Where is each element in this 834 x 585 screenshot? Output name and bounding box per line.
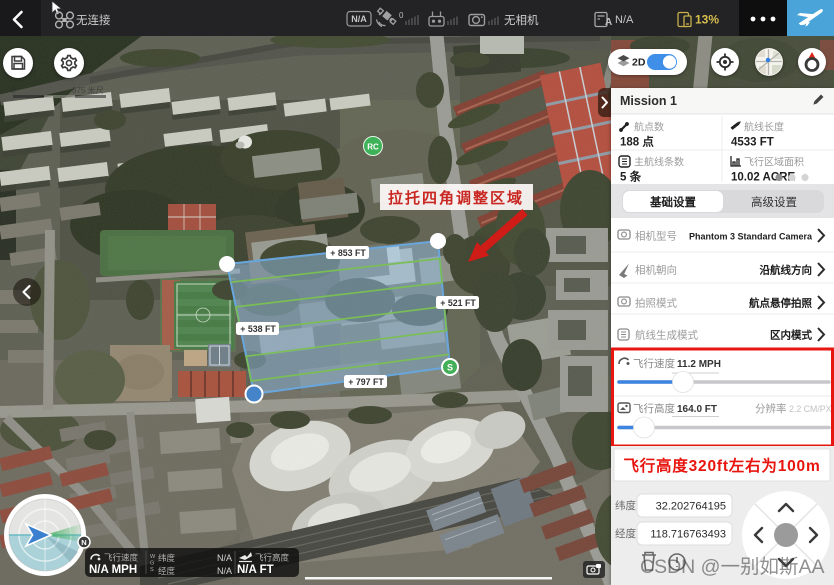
- svg-text:Mission 1: Mission 1: [620, 94, 677, 108]
- svg-text:飞行区域面积: 飞行区域面积: [744, 156, 804, 169]
- svg-text:航线生成模式: 航线生成模式: [635, 329, 698, 342]
- svg-text:纬度: 纬度: [158, 553, 176, 563]
- svg-text:S: S: [447, 363, 453, 373]
- svg-text:区内模式: 区内模式: [770, 329, 812, 342]
- svg-text:飞行高度320ft左右为100m: 飞行高度320ft左右为100m: [623, 456, 820, 475]
- svg-text:2D: 2D: [632, 57, 646, 69]
- svg-text:飞行速度: 飞行速度: [633, 357, 675, 370]
- svg-text:0: 0: [399, 11, 404, 20]
- svg-text:11.2 MPH: 11.2 MPH: [677, 359, 721, 370]
- svg-text:164.0 FT: 164.0 FT: [677, 404, 717, 415]
- svg-text:13%: 13%: [695, 13, 719, 27]
- svg-text:N/A: N/A: [615, 14, 634, 26]
- svg-text:主航线条数: 主航线条数: [634, 156, 684, 169]
- svg-text:拉托四角调整区域: 拉托四角调整区域: [388, 189, 524, 207]
- svg-text:飞行高度: 飞行高度: [255, 553, 290, 563]
- svg-text:N/A: N/A: [217, 553, 232, 563]
- svg-text:S: S: [150, 567, 154, 573]
- svg-text:沿航线方向: 沿航线方向: [760, 264, 813, 277]
- svg-text:飞行高度: 飞行高度: [633, 402, 675, 415]
- svg-text:经度: 经度: [615, 527, 636, 540]
- svg-text:航点数: 航点数: [634, 121, 664, 134]
- svg-text:4533 FT: 4533 FT: [731, 137, 774, 149]
- svg-text:+ 797 FT: + 797 FT: [348, 377, 384, 387]
- svg-text:32.202764195: 32.202764195: [656, 501, 726, 513]
- svg-text:A: A: [605, 17, 612, 28]
- svg-text:118.716763493: 118.716763493: [650, 529, 726, 541]
- svg-text:N/A FT: N/A FT: [237, 564, 274, 576]
- svg-text:N/A MPH: N/A MPH: [89, 564, 137, 576]
- svg-text:相机型号: 相机型号: [635, 230, 677, 243]
- svg-text:航点悬停拍照: 航点悬停拍照: [749, 297, 812, 310]
- svg-text:+ 538 FT: + 538 FT: [240, 324, 276, 334]
- svg-text:纬度: 纬度: [615, 499, 636, 512]
- svg-text:375 米尺: 375 米尺: [72, 85, 104, 95]
- svg-text:10.02 ACRE: 10.02 ACRE: [731, 172, 795, 184]
- svg-text:N/A: N/A: [351, 14, 367, 24]
- svg-text:无相机: 无相机: [504, 13, 539, 27]
- svg-text:N: N: [81, 538, 86, 547]
- svg-text:W: W: [150, 554, 156, 560]
- svg-text:航线长度: 航线长度: [744, 121, 784, 134]
- svg-text:2.2 CM/PX: 2.2 CM/PX: [789, 404, 832, 414]
- svg-text:无连接: 无连接: [76, 13, 111, 27]
- svg-text:+ 853 FT: + 853 FT: [330, 248, 366, 258]
- svg-text:G: G: [150, 561, 154, 567]
- svg-text:+ 521 FT: + 521 FT: [440, 298, 476, 308]
- svg-text:188 点: 188 点: [620, 135, 654, 149]
- svg-text:飞行速度: 飞行速度: [104, 553, 139, 563]
- svg-text:相机朝向: 相机朝向: [635, 264, 677, 277]
- svg-text:基础设置: 基础设置: [649, 195, 696, 209]
- svg-text:经度: 经度: [158, 566, 176, 576]
- svg-text:分辨率: 分辨率: [755, 402, 787, 415]
- svg-text:0: 0: [11, 86, 16, 95]
- svg-text:Phantom 3 Standard Camera: Phantom 3 Standard Camera: [689, 232, 813, 242]
- svg-text:5 条: 5 条: [620, 170, 642, 184]
- svg-text:拍照模式: 拍照模式: [635, 297, 677, 310]
- svg-text:高级设置: 高级设置: [751, 195, 797, 209]
- svg-text:N/A: N/A: [217, 566, 232, 576]
- svg-text:RC: RC: [367, 143, 379, 152]
